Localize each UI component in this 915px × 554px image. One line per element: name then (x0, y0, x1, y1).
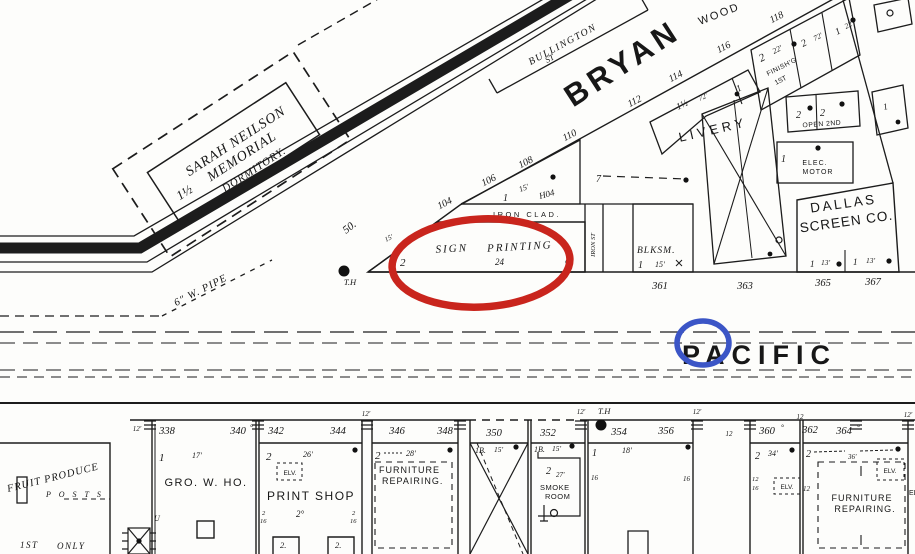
svg-text:360: 360 (758, 426, 776, 437)
livery-width-1: 72' (697, 91, 709, 103)
smoke-mark-s: 1B. (534, 445, 545, 454)
svg-text:2.: 2. (335, 540, 341, 550)
water-pipe-label: 6" W. PIPE (173, 273, 230, 309)
print-shop-label: PRINT SHOP (267, 489, 355, 503)
blacksmith-stories: 1 (638, 260, 643, 271)
svg-text:364: 364 (835, 426, 853, 437)
triangle-width: 15' (518, 182, 530, 194)
furn1-stories: 2 (375, 450, 381, 462)
open-stories-1: 2 (796, 110, 801, 121)
svg-text:104: 104 (436, 195, 454, 212)
small-building-right-stories: 1 (882, 101, 889, 112)
finishing-stories-3: 1 (834, 27, 843, 38)
b354-height-right: 16 (683, 475, 691, 483)
blacksmith-label: BLKSM. (637, 246, 675, 256)
b354-door (628, 531, 648, 554)
th-marker-north (339, 266, 350, 277)
dallas-cell1-stories: 1 (810, 259, 815, 269)
th-label-north: T.H (344, 277, 357, 287)
b354-stories: 1 (592, 448, 597, 459)
print-elevator-label: ELV. (283, 470, 296, 477)
street-label-iron-st: IRON ST (590, 233, 597, 258)
water-pipe-line (0, 260, 272, 316)
gro-skylight (197, 521, 214, 538)
print-shed-boxes: 2. 2. (273, 537, 354, 554)
sign-printing-stories: 2 (400, 257, 406, 269)
smoke-mark-w: 15' (552, 444, 562, 453)
smoke-label-2: ROOM (545, 492, 570, 501)
svg-text:16: 16 (350, 518, 357, 525)
first-only-label-2: ONLY (57, 541, 85, 551)
b360-twelve: 12 (803, 485, 811, 493)
open-stories-2: 2 (820, 108, 825, 119)
hoist-symbol (122, 528, 156, 554)
elec-label-2: MOTOR (803, 169, 834, 176)
b360-elevator-label: ELV. (780, 484, 793, 491)
svg-text:°: ° (857, 423, 860, 432)
iron-clad-triangle-building (461, 140, 580, 204)
finishing-width-2: 72' (812, 30, 825, 42)
svg-text:12': 12' (362, 410, 371, 418)
finishing-width-1: 22' (771, 43, 784, 56)
furn1-width: 28' (406, 449, 416, 458)
svg-text:°: ° (250, 423, 253, 432)
svg-text:365: 365 (814, 278, 831, 289)
elec-label-1: ELEC. (802, 160, 827, 167)
x-building-350 (470, 443, 528, 554)
posts-label: P O S T S (45, 490, 104, 499)
svg-text:340: 340 (229, 426, 247, 437)
small-building-top-right (874, 0, 912, 32)
svg-text:352: 352 (539, 428, 557, 439)
svg-text:118: 118 (768, 10, 786, 26)
svg-text:348: 348 (436, 426, 454, 437)
svg-text:12': 12' (904, 411, 913, 419)
blacksmith-dashed-lot-line (603, 176, 686, 179)
smoke-stories: 2 (546, 466, 551, 477)
x-building-mark-w: 15' (494, 445, 504, 454)
b360-height-marks: 12 16 (752, 476, 759, 492)
svg-text:12: 12 (797, 413, 805, 421)
print-stories: 2 (266, 451, 272, 463)
triangle-number: H04 (537, 187, 556, 201)
svg-text:12': 12' (577, 408, 586, 416)
south-street-numbers: 338 340 342 344 346 348 350 352 354 356 … (158, 425, 853, 439)
triangle-stories: 1 (503, 193, 508, 204)
furn2-edge-label: EL (909, 490, 915, 497)
svg-text:367: 367 (864, 277, 882, 288)
elec-stories: 1 (781, 154, 786, 165)
svg-text:116: 116 (715, 40, 733, 56)
livery-stories-1: 1½ (674, 98, 689, 113)
furn2-label-1: FURNITURE (832, 493, 893, 503)
furn2-width: 36' (847, 453, 857, 461)
street-label-bryan: BRYAN (558, 13, 687, 114)
svg-text:12': 12' (133, 425, 142, 433)
finishing-stories-1: 2 (757, 51, 768, 64)
dallas-cell1-width: 13' (821, 258, 831, 267)
finishing-label-2: 1ST (774, 75, 788, 87)
parcel-dashed-line (298, 0, 385, 45)
b360-width: 34' (767, 449, 778, 458)
print-width: 26' (303, 450, 313, 459)
th-marker-south (596, 420, 607, 431)
gro-width: 17' (192, 451, 202, 460)
dormitory-stories: 1½ (173, 181, 195, 203)
svg-text:12: 12 (752, 476, 759, 483)
sanborn-map: BULLINGTON ST 1½ SARAH NEILSON MEMORIAL … (0, 0, 915, 554)
svg-text:106: 106 (480, 172, 498, 189)
svg-text:°: ° (781, 423, 784, 432)
furn2-label-2: REPAIRING. (834, 504, 895, 514)
b354-height-left: 16 (591, 474, 599, 482)
print-height-marks: 216 216 (260, 510, 357, 525)
svg-text:362: 362 (801, 425, 819, 436)
svg-text:344: 344 (329, 426, 347, 437)
smoke-label-1: SMOKE (540, 483, 570, 492)
blacksmith-corner-cross (676, 260, 682, 266)
svg-text:363: 363 (736, 281, 753, 292)
svg-text:350: 350 (485, 428, 503, 439)
svg-text:354: 354 (610, 427, 628, 438)
street-label-wood: WOOD (697, 1, 742, 28)
livery-label: LIVERY (677, 114, 749, 144)
first-only-label-1: 1ST (20, 540, 39, 550)
svg-text:342: 342 (267, 426, 285, 437)
svg-text:361: 361 (651, 281, 668, 292)
railroad-track (0, 0, 600, 272)
furn2-dashes (814, 450, 893, 452)
svg-text:12': 12' (693, 408, 702, 416)
th-label-south: T.H (598, 406, 611, 416)
x-building-mark-s: 1B. (475, 446, 486, 455)
furn1-label-1: FURNITURE (379, 465, 440, 475)
fifty-foot-label: 50. (340, 218, 358, 236)
sign-printing-side-width: 15' (383, 233, 395, 244)
print-floor-mark: 2° (296, 509, 305, 519)
svg-text:12: 12 (726, 430, 734, 438)
svg-text:2: 2 (352, 510, 356, 517)
south-building-outlines (0, 420, 908, 554)
blacksmith-width: 15' (655, 260, 665, 269)
gro-door-mark: U (154, 514, 161, 523)
gro-stories: 1 (159, 452, 165, 464)
furn2-elevator-label: ELV. (883, 468, 896, 475)
svg-text:2.: 2. (280, 540, 286, 550)
livery-building (650, 70, 760, 154)
furn2-stories: 2 (806, 449, 811, 460)
b354-width: 18' (622, 446, 632, 455)
red-annotation-circle (390, 214, 572, 311)
svg-text:356: 356 (657, 426, 675, 437)
furn1-label-2: REPAIRING. (382, 476, 443, 486)
north-lot-numbers: 361 363 365 367 (651, 277, 882, 292)
smoke-width: 27' (556, 471, 565, 479)
svg-text:16: 16 (260, 518, 267, 525)
gro-label: GRO. W. HO. (164, 477, 247, 489)
svg-text:112: 112 (626, 94, 644, 110)
finishing-label-1: FINISH'G (766, 57, 798, 78)
sign-printing-height: 24 (495, 257, 505, 267)
b360-stories: 2 (755, 451, 760, 462)
dallas-cell2-stories: 1 (853, 257, 858, 267)
svg-text:338: 338 (158, 426, 176, 437)
svg-text:346: 346 (388, 426, 406, 437)
svg-text:16: 16 (752, 485, 759, 492)
svg-text:2: 2 (262, 510, 266, 517)
dallas-cell2-width: 13' (866, 256, 876, 265)
sign-printing-label-2: PRINTING (486, 239, 553, 254)
sign-printing-label-1: SIGN (435, 242, 468, 256)
finishing-stories-2: 2 (799, 38, 808, 50)
blacksmith-corner-number: 7 (596, 174, 602, 185)
